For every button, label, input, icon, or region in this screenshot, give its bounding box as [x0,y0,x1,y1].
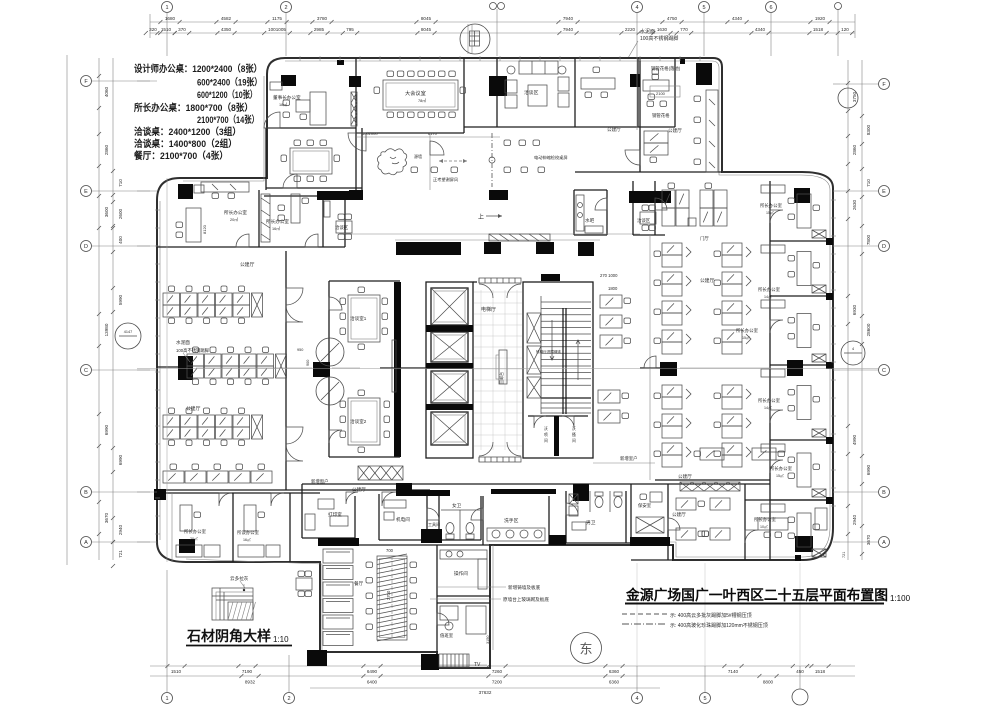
svg-text:6990: 6990 [866,464,871,475]
svg-text:6990: 6990 [118,454,123,465]
svg-text:6360: 6360 [609,680,620,685]
svg-text:洽谈桌：2400*1200（3组）: 洽谈桌：2400*1200（3组） [134,126,241,138]
svg-text:4: 4 [852,347,854,351]
svg-text:所长办公室: 所长办公室 [758,286,781,293]
svg-text:水泥面: 水泥面 [176,339,190,346]
svg-text:15㎡: 15㎡ [766,210,774,215]
svg-text:示: 400高玻化珍珠踢脚加120mm不锈钢压顶: 示: 400高玻化珍珠踢脚加120mm不锈钢压顶 [670,622,768,629]
svg-text:6400: 6400 [367,680,378,685]
svg-text:值班室: 值班室 [440,632,454,639]
svg-text:15㎡: 15㎡ [742,335,750,340]
svg-text:C: C [84,368,88,374]
svg-text:1510: 1510 [171,669,182,674]
svg-text:所长办公室: 所长办公室 [224,209,247,216]
svg-text:3670: 3670 [866,534,871,545]
svg-text:喷: 喷 [544,432,548,437]
svg-text:公建厅: 公建厅 [678,473,692,480]
svg-text:2940: 2940 [118,524,123,535]
svg-text:公建厅: 公建厅 [700,277,715,284]
svg-text:4: 4 [635,696,638,702]
svg-text:721: 721 [842,552,846,558]
svg-text:400: 400 [118,236,123,244]
svg-text:机电间: 机电间 [396,516,410,523]
svg-text:13980: 13980 [104,323,109,336]
svg-text:男卫: 男卫 [586,520,596,526]
svg-text:8300: 8300 [866,124,871,135]
svg-text:370: 370 [178,27,186,32]
svg-text:950: 950 [297,348,303,352]
svg-text:搔: 搔 [572,432,576,437]
svg-text:8045: 8045 [421,27,432,32]
svg-text:1630: 1630 [657,27,668,32]
svg-text:100高不锈钢踢脚: 100高不锈钢踢脚 [640,35,678,42]
svg-text:水吧: 水吧 [585,217,595,223]
svg-text:所长办公桌：1800*700（8张）: 所长办公桌：1800*700（8张） [134,102,253,114]
svg-text:1: 1 [165,696,168,702]
svg-text:所长办公室: 所长办公室 [758,397,781,404]
svg-text:3600: 3600 [104,206,109,217]
svg-text:2860: 2860 [852,144,857,155]
svg-text:710: 710 [118,179,123,187]
svg-text:上: 上 [478,213,484,221]
svg-text:10㎡: 10㎡ [760,524,768,529]
svg-text:2100*700（14张）: 2100*700（14张） [197,114,259,126]
svg-text:原墙台上玻璃砌及板底: 原墙台上玻璃砌及板底 [503,596,549,603]
svg-text:2600: 2600 [118,208,123,219]
svg-text:6990: 6990 [104,424,109,435]
svg-text:2700: 2700 [386,590,391,600]
svg-text:7940: 7940 [563,16,574,21]
svg-text:公建厅: 公建厅 [672,511,686,518]
svg-text:洽谈室2: 洽谈室2 [350,418,367,425]
svg-text:4990: 4990 [852,434,857,445]
svg-text:1001000: 1001000 [362,131,378,136]
svg-text:打印室: 打印室 [328,511,342,518]
svg-text:5990: 5990 [118,294,123,305]
svg-text:云多拉灰: 云多拉灰 [230,575,249,582]
svg-text:正考望谢屏风: 正考望谢屏风 [433,176,459,183]
svg-text:1518: 1518 [815,669,826,674]
svg-text:1510: 1510 [161,27,172,32]
svg-text:2: 2 [287,696,290,702]
svg-text:电动伸缩检校桌屏: 电动伸缩检校桌屏 [534,154,568,161]
svg-text:间: 间 [544,438,548,443]
svg-text:14㎡: 14㎡ [764,294,772,299]
svg-text:东: 东 [579,642,592,657]
svg-text:1518: 1518 [813,27,824,32]
svg-text:D: D [84,244,88,250]
svg-text:1: 1 [165,5,168,11]
svg-text:795: 795 [346,27,354,32]
svg-text:1680: 1680 [165,16,176,21]
svg-text:14㎡: 14㎡ [764,405,772,410]
svg-text:洽谈区: 洽谈区 [335,224,349,231]
svg-text:7140: 7140 [728,669,739,674]
svg-text:女卫: 女卫 [452,502,462,509]
svg-text:78㎡: 78㎡ [418,98,426,103]
svg-text:6930: 6930 [852,304,857,315]
svg-text:A: A [882,540,886,546]
svg-text:1:100: 1:100 [890,594,911,603]
svg-text:4060: 4060 [104,86,109,97]
svg-text:1:10: 1:10 [273,635,289,644]
svg-text:37632: 37632 [479,690,492,695]
svg-text:8800: 8800 [763,680,774,685]
svg-text:18㎡: 18㎡ [279,102,287,107]
svg-text:E: E [882,189,886,195]
svg-text:沃: 沃 [572,426,576,431]
svg-text:间: 间 [572,438,576,443]
svg-text:示: 400高云多批灰踢脚加5#槽钢压顶: 示: 400高云多批灰踢脚加5#槽钢压顶 [670,612,752,619]
svg-text:公建厅: 公建厅 [607,126,621,133]
svg-text:设计师办公桌：1200*2400（8张）: 设计师办公桌：1200*2400（8张） [134,63,262,75]
svg-text:4582: 4582 [221,16,232,21]
svg-text:7200: 7200 [492,680,503,685]
svg-text:3780: 3780 [317,16,328,21]
svg-text:B: B [882,490,886,496]
svg-text:钢管花格(落地): 钢管花格(落地) [651,65,681,72]
svg-text:4750: 4750 [667,16,678,21]
svg-text:2940: 2940 [852,514,857,525]
svg-text:水泥面: 水泥面 [640,28,655,35]
svg-text:4340: 4340 [732,16,743,21]
svg-text:6170: 6170 [428,131,438,136]
svg-text:2630: 2630 [852,199,857,210]
svg-text:7190: 7190 [242,669,253,674]
svg-text:700: 700 [386,548,394,553]
svg-text:回邮台: 回邮台 [498,372,504,384]
svg-text:B: B [84,490,88,496]
svg-text:餐厅: 餐厅 [354,580,364,587]
svg-text:所长办公室: 所长办公室 [266,218,289,225]
svg-text:C: C [882,368,886,374]
svg-text:7800: 7800 [866,234,871,245]
svg-text:门厅: 门厅 [700,235,709,242]
svg-text:4350: 4350 [221,27,232,32]
svg-text:3150: 3150 [486,636,490,644]
svg-text:源墙: 源墙 [414,153,422,159]
svg-text:A: A [84,540,88,546]
svg-text:电梯厅: 电梯厅 [481,306,496,313]
svg-text:600*2400（19张）: 600*2400（19张） [197,77,262,89]
svg-text:3670: 3670 [104,512,109,523]
svg-text:600*1200（10张）: 600*1200（10张） [197,89,257,101]
svg-text:保安室: 保安室 [638,502,652,509]
svg-text:新增铸墙及板底: 新增铸墙及板底 [508,584,541,591]
svg-text:8045: 8045 [421,16,432,21]
svg-text:E: E [84,189,88,195]
svg-text:6: 6 [769,5,772,11]
svg-text:所长办公室: 所长办公室 [770,465,793,472]
svg-text:2: 2 [284,5,287,11]
svg-text:721: 721 [118,550,123,558]
svg-text:新增窗户: 新增窗户 [311,478,329,485]
svg-text:15㎡: 15㎡ [776,473,784,478]
svg-text:沃: 沃 [544,426,548,431]
svg-text:新增室户: 新增室户 [620,455,638,462]
svg-text:洗手区: 洗手区 [504,517,519,524]
svg-text:公建厅: 公建厅 [668,127,682,134]
svg-text:16㎡: 16㎡ [272,226,280,231]
svg-text:2100: 2100 [656,91,666,96]
svg-text:董事长办公室: 董事长办公室 [273,94,301,101]
svg-text:7940: 7940 [563,27,574,32]
svg-text:120: 120 [841,27,849,32]
svg-text:6490: 6490 [367,669,378,674]
svg-text:D: D [882,244,886,250]
svg-text:7260: 7260 [492,669,503,674]
svg-text:100高不锈钢踢脚: 100高不锈钢踢脚 [176,347,209,354]
svg-text:5: 5 [702,5,705,11]
svg-text:1800: 1800 [608,286,618,291]
svg-text:4340: 4340 [755,27,766,32]
svg-text:4147: 4147 [124,330,132,334]
svg-text:770: 770 [680,27,688,32]
svg-text:1175: 1175 [272,16,282,21]
svg-text:900: 900 [306,360,310,366]
svg-text:710: 710 [866,179,871,187]
svg-text:1920: 1920 [815,16,826,21]
svg-text:2220: 2220 [625,27,636,32]
svg-text:450: 450 [796,669,804,674]
svg-text:20㎡: 20㎡ [190,536,198,541]
svg-text:石材阴角大样: 石材阴角大样 [186,628,271,644]
svg-text:所长办公室: 所长办公室 [184,528,207,535]
svg-text:洽谈区: 洽谈区 [637,217,651,224]
svg-text:洽谈区: 洽谈区 [524,89,539,96]
svg-text:2985: 2985 [314,27,325,32]
svg-text:28600: 28600 [866,323,871,336]
svg-text:洽谈桌：1400*800（2组）: 洽谈桌：1400*800（2组） [134,138,237,150]
svg-text:所谈办公室: 所谈办公室 [237,529,260,536]
svg-text:270 1000: 270 1000 [600,273,618,278]
svg-text:2860: 2860 [104,144,109,155]
svg-text:餐厅：2100*700（4张）: 餐厅：2100*700（4张） [133,150,228,162]
svg-text:大会议室: 大会议室 [405,89,426,97]
svg-text:钢管花格: 钢管花格 [652,112,670,119]
svg-text:洽谈室1: 洽谈室1 [350,315,367,322]
svg-text:金源广场国广一叶西区二十五层平面布置图: 金源广场国广一叶西区二十五层平面布置图 [625,587,888,603]
svg-text:320: 320 [149,27,157,32]
svg-text:所长办公室: 所长办公室 [736,327,759,334]
svg-text:公建厅: 公建厅 [240,261,255,268]
svg-text:公建厅: 公建厅 [186,405,201,412]
svg-text:操作间: 操作间 [454,570,468,577]
svg-text:8120: 8120 [202,224,207,234]
svg-text:8932: 8932 [245,680,256,685]
svg-text:5: 5 [703,696,706,702]
svg-text:4: 4 [635,5,638,11]
svg-text:TV: TV [474,662,481,668]
svg-text:所长办公室: 所长办公室 [760,202,783,209]
svg-text:工具间: 工具间 [428,521,440,527]
svg-text:公建厅: 公建厅 [352,486,366,493]
svg-text:残椅行进障碍连: 残椅行进障碍连 [536,349,562,354]
svg-text:所长办公室: 所长办公室 [754,516,777,523]
svg-text:1001005: 1001005 [268,27,286,32]
svg-text:16㎡: 16㎡ [243,537,251,542]
svg-text:20㎡: 20㎡ [230,217,238,222]
svg-text:6360: 6360 [609,669,620,674]
